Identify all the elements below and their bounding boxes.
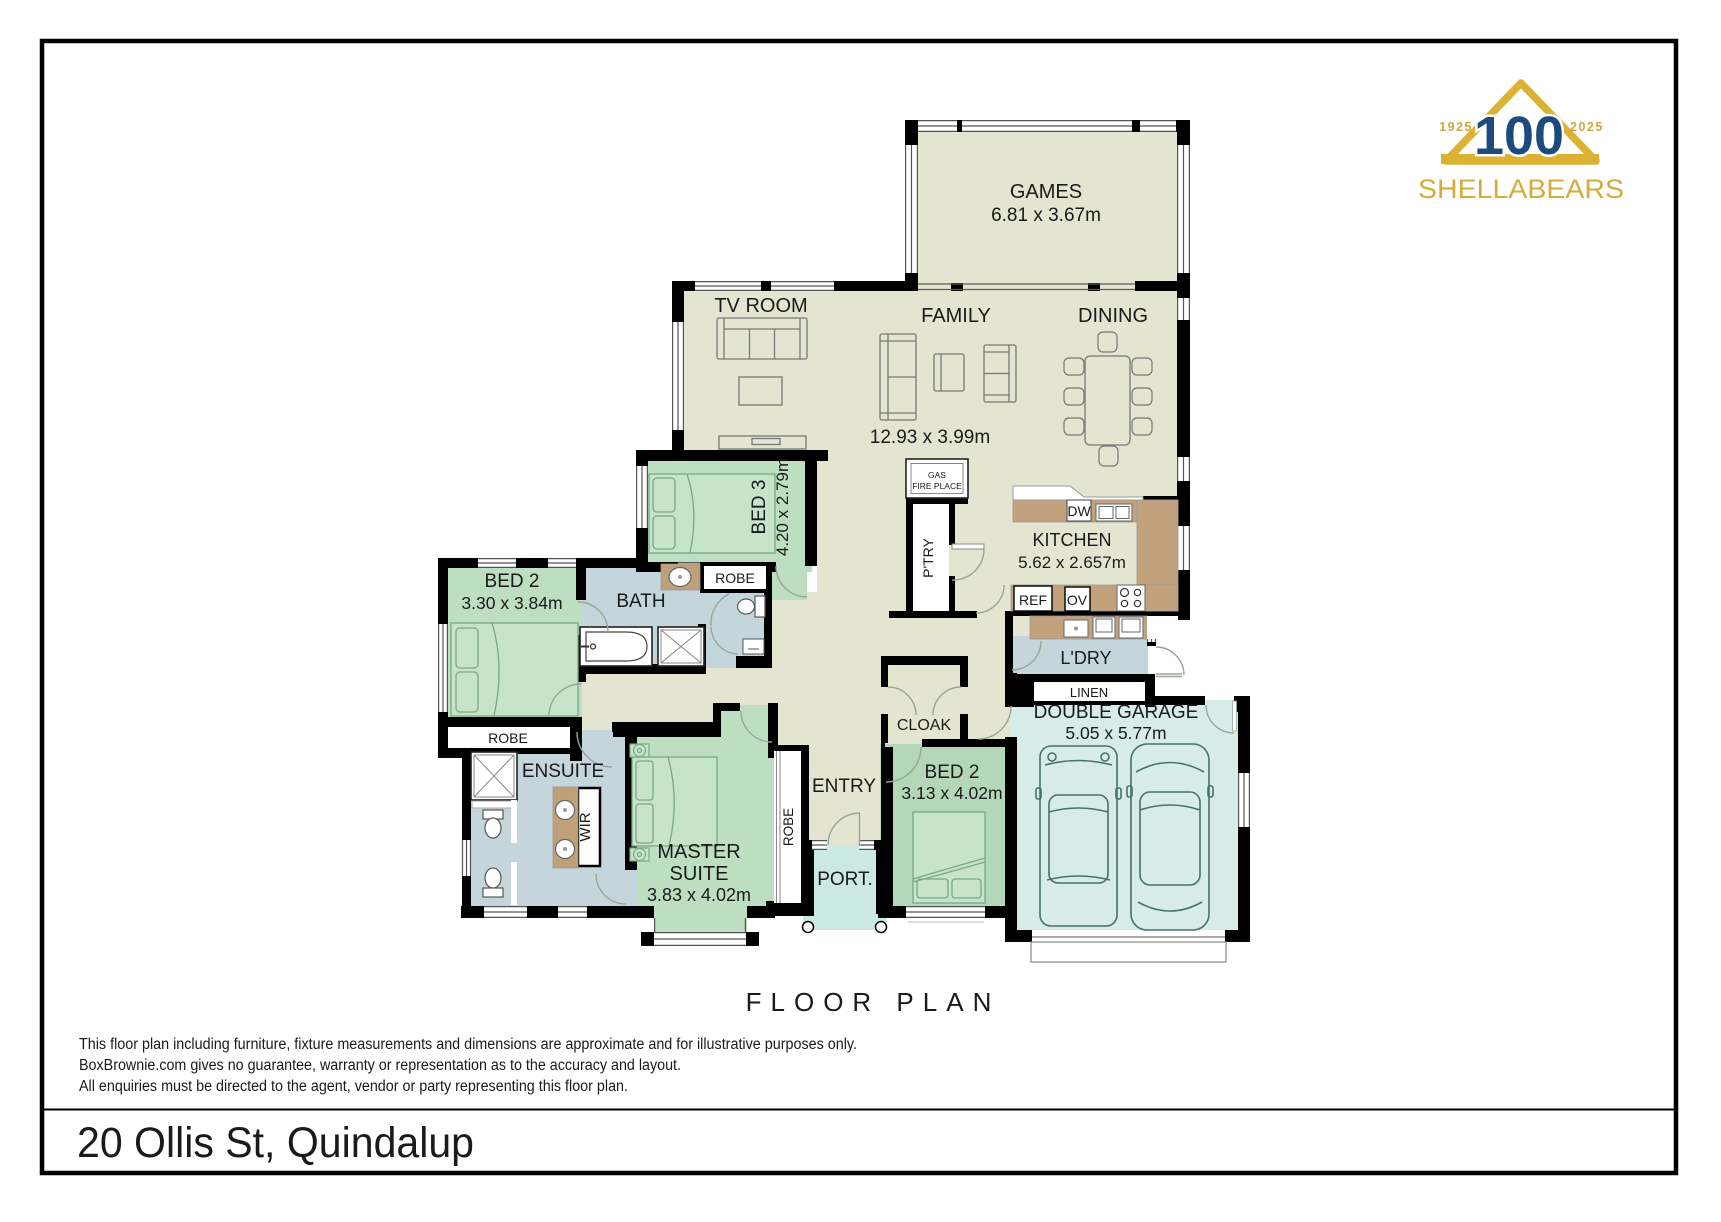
svg-text:CLOAK: CLOAK: [897, 717, 952, 734]
svg-text:ROBE: ROBE: [715, 570, 755, 586]
svg-text:4.20 x 2.79m: 4.20 x 2.79m: [773, 458, 792, 556]
svg-text:SUITE: SUITE: [670, 863, 729, 885]
svg-text:PORT.: PORT.: [817, 869, 873, 890]
svg-text:100: 100: [1474, 106, 1564, 166]
svg-text:3.83 x 4.02m: 3.83 x 4.02m: [647, 885, 751, 905]
svg-text:P'TRY: P'TRY: [920, 537, 936, 577]
svg-text:This floor plan including furn: This floor plan including furniture, fix…: [79, 1036, 857, 1053]
svg-text:FIRE PLACE: FIRE PLACE: [912, 481, 962, 491]
svg-text:ENSUITE: ENSUITE: [522, 761, 604, 782]
svg-text:GAS: GAS: [928, 470, 946, 480]
svg-text:ROBE: ROBE: [781, 808, 796, 846]
svg-text:5.05 x 5.77m: 5.05 x 5.77m: [1065, 723, 1166, 743]
svg-text:DINING: DINING: [1078, 305, 1148, 327]
svg-text:DW: DW: [1067, 503, 1091, 519]
svg-text:BED 2: BED 2: [485, 571, 540, 592]
svg-text:BED 2: BED 2: [925, 762, 980, 783]
svg-text:2025: 2025: [1570, 120, 1604, 134]
svg-text:BATH: BATH: [616, 591, 665, 612]
svg-text:ROBE: ROBE: [488, 730, 528, 746]
svg-text:BED 3: BED 3: [749, 480, 770, 535]
svg-text:3.13 x 4.02m: 3.13 x 4.02m: [901, 783, 1002, 803]
svg-text:OV: OV: [1067, 592, 1088, 608]
svg-text:5.62 x 2.657m: 5.62 x 2.657m: [1018, 553, 1126, 572]
svg-text:FLOOR PLAN: FLOOR PLAN: [746, 987, 1001, 1017]
svg-text:KITCHEN: KITCHEN: [1032, 530, 1111, 550]
svg-text:DOUBLE GARAGE: DOUBLE GARAGE: [1034, 702, 1199, 723]
svg-text:BoxBrownie.com gives no guaran: BoxBrownie.com gives no guarantee, warra…: [79, 1057, 681, 1074]
svg-text:12.93 x 3.99m: 12.93 x 3.99m: [870, 427, 990, 448]
svg-text:REF: REF: [1019, 592, 1047, 608]
svg-text:FAMILY: FAMILY: [921, 305, 991, 327]
svg-text:GAMES: GAMES: [1010, 181, 1082, 203]
svg-text:WIR: WIR: [577, 812, 594, 841]
svg-text:L'DRY: L'DRY: [1060, 648, 1111, 668]
svg-text:SHELLABEARS: SHELLABEARS: [1418, 174, 1624, 204]
svg-text:TV ROOM: TV ROOM: [714, 295, 807, 317]
svg-text:MASTER: MASTER: [657, 841, 740, 863]
svg-text:LINEN: LINEN: [1070, 685, 1108, 700]
svg-text:All enquiries must be directed: All enquiries must be directed to the ag…: [79, 1078, 628, 1095]
svg-text:1925: 1925: [1439, 120, 1473, 134]
svg-text:20 Ollis St, Quindalup: 20 Ollis St, Quindalup: [77, 1119, 474, 1167]
svg-text:3.30 x 3.84m: 3.30 x 3.84m: [461, 593, 562, 613]
svg-text:ENTRY: ENTRY: [812, 776, 876, 797]
svg-text:6.81 x 3.67m: 6.81 x 3.67m: [991, 205, 1101, 226]
